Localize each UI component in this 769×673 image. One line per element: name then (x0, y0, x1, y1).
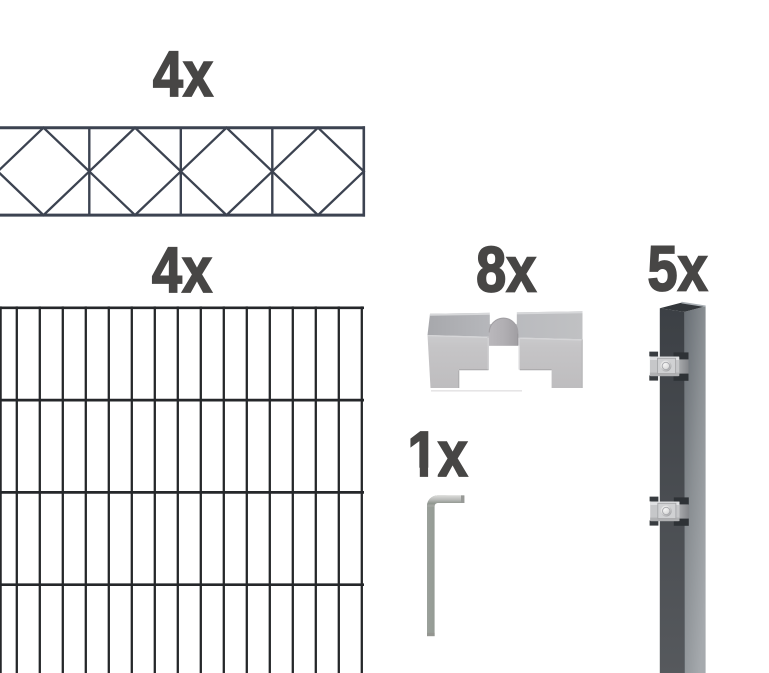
svg-text:1x: 1x (408, 418, 468, 490)
svg-text:8x: 8x (476, 233, 536, 305)
svg-text:4x: 4x (152, 234, 212, 306)
svg-text:4x: 4x (153, 38, 213, 110)
svg-text:5x: 5x (648, 232, 708, 304)
